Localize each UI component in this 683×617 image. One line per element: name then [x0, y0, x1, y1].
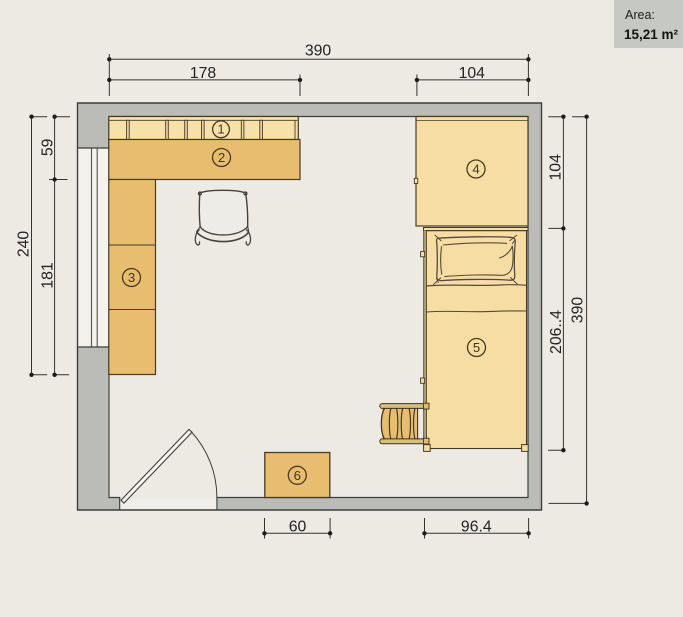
- svg-text:181: 181: [39, 262, 56, 289]
- svg-text:240: 240: [16, 231, 33, 258]
- svg-text:96.4: 96.4: [461, 518, 492, 535]
- svg-text:178: 178: [190, 65, 217, 82]
- svg-text:60: 60: [289, 518, 307, 535]
- svg-text:6: 6: [294, 468, 301, 483]
- svg-text:15,21 m²: 15,21 m²: [624, 27, 679, 42]
- svg-text:3: 3: [128, 270, 135, 285]
- svg-text:1: 1: [217, 123, 224, 137]
- svg-text:59: 59: [39, 138, 56, 156]
- svg-text:5: 5: [473, 340, 480, 355]
- svg-text:104: 104: [548, 154, 565, 181]
- svg-text:Area:: Area:: [625, 8, 655, 22]
- svg-text:206..4: 206..4: [548, 310, 565, 354]
- svg-text:390: 390: [305, 43, 332, 60]
- svg-text:4: 4: [472, 162, 479, 177]
- svg-text:390: 390: [569, 297, 586, 324]
- svg-text:2: 2: [218, 150, 225, 165]
- svg-text:104: 104: [459, 65, 486, 82]
